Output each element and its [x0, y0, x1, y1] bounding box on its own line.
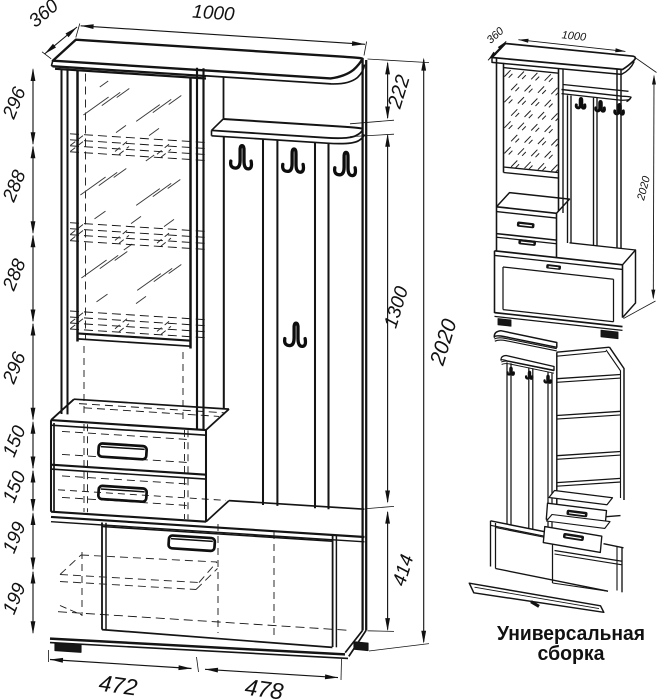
svg-text:472: 472: [97, 670, 139, 700]
svg-text:478: 478: [243, 674, 285, 700]
svg-text:1000: 1000: [192, 2, 236, 26]
svg-text:сборка: сборка: [538, 642, 606, 665]
